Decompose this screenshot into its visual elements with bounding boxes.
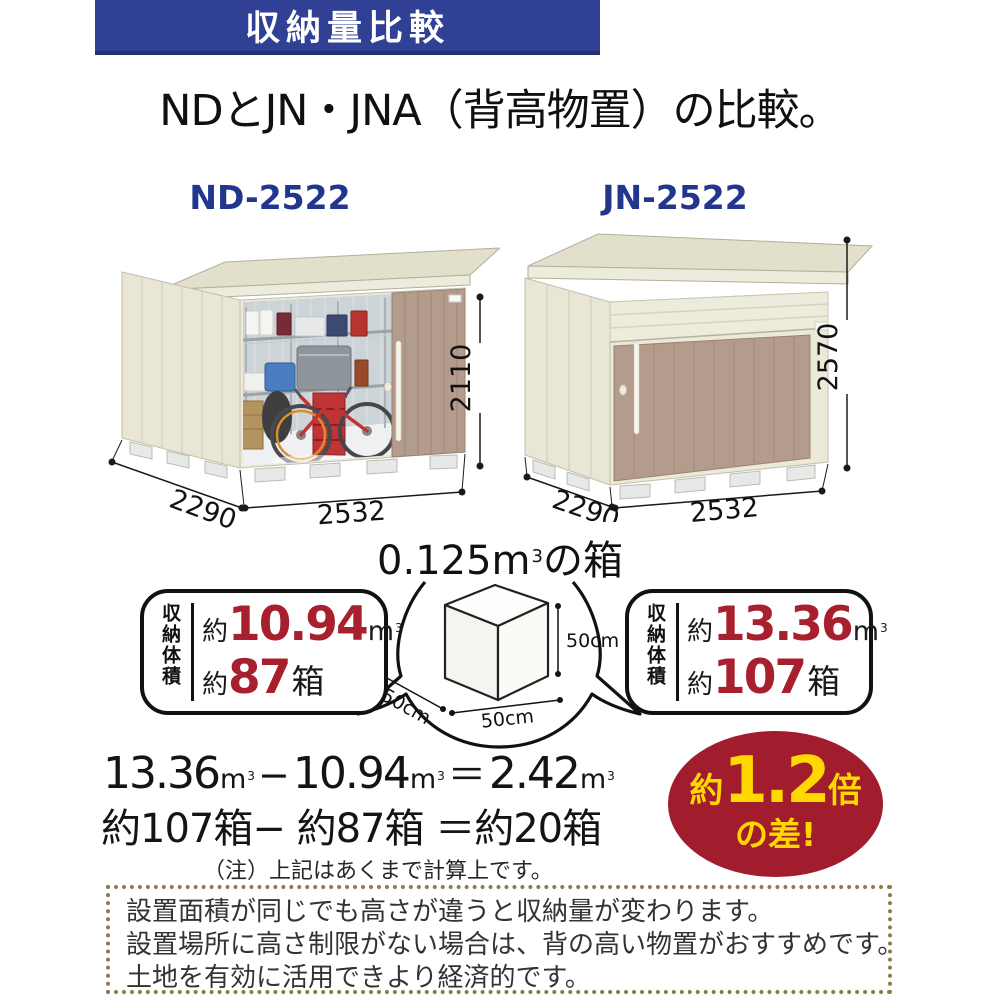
jn-volume-row: 約 13.36 m3 xyxy=(687,601,888,648)
difference-badge: 約 1.2 倍 の差! xyxy=(668,731,883,877)
jn-roof xyxy=(528,234,872,284)
nd-interior xyxy=(241,294,394,467)
footer-line-1: 設置面積が同じでも高さが違うと収納量が変わります。 xyxy=(126,896,872,929)
shed-illustration-nd: 2290 2532 2110 xyxy=(105,225,500,530)
footer-line-2: 設置場所に高さ制限がない場合は、背の高い物置がおすすめです。 xyxy=(126,929,872,962)
page-heading: NDとJN・JNA（背高物置）の比較。 xyxy=(0,76,1000,138)
stat-box-jn: 収納体積 約 13.36 m3 約 107 箱 xyxy=(625,589,873,715)
footer-line-3: 土地を有効に活用できより経済的です。 xyxy=(126,962,872,995)
title-banner: 収納量比較 xyxy=(95,0,600,55)
jn-width-label: 2532 xyxy=(689,492,760,522)
badge-caption: の差! xyxy=(735,808,816,856)
cube-height-label: 50cm xyxy=(566,630,619,652)
badge-value-line: 約 1.2 倍 xyxy=(689,753,861,812)
jn-door-lock xyxy=(620,385,627,395)
nd-door-lock xyxy=(385,382,392,392)
footer-note-box: 設置面積が同じでも高さが違うと収納量が変わります。 設置場所に高さ制限がない場合… xyxy=(106,885,892,994)
stat-label-jn: 収納体積 xyxy=(642,603,679,701)
comparison-infographic: 収納量比較 NDとJN・JNA（背高物置）の比較。 ND-2522 JN-252… xyxy=(0,0,1000,1000)
nd-volume-row: 約 10.94 m3 xyxy=(202,601,403,648)
nd-side-wall xyxy=(122,272,240,468)
jn-boxes-row: 約 107 箱 xyxy=(687,654,888,703)
nd-door-handle xyxy=(396,341,401,441)
calc-boxes-line: 約107箱− 約87箱 ＝約20箱 xyxy=(101,796,601,854)
jn-door-handle xyxy=(634,342,639,434)
nd-boxes-row: 約 87 箱 xyxy=(202,654,403,703)
banner-title: 収納量比較 xyxy=(245,0,450,51)
nd-height-label: 2110 xyxy=(446,344,477,413)
nd-logo-tag xyxy=(449,295,461,302)
jn-side-wall xyxy=(525,278,610,485)
jn-height-label: 2570 xyxy=(813,323,844,392)
calc-note: （注）上記はあくまで計算上です。 xyxy=(203,853,553,885)
model-label-nd: ND-2522 xyxy=(180,178,360,217)
calc-volume-line: 13.36m3−10.94m3＝2.42m3 xyxy=(103,744,615,799)
nd-width-label: 2532 xyxy=(316,496,387,530)
stat-label-nd: 収納体積 xyxy=(157,603,194,701)
cube xyxy=(445,585,548,700)
shed-illustration-jn: 2290 2532 2570 xyxy=(515,222,890,522)
jn-door xyxy=(614,335,810,481)
stat-box-nd: 収納体積 約 10.94 m3 約 87 箱 xyxy=(140,589,388,715)
nd-depth-label: 2290 xyxy=(165,484,240,530)
model-label-jn: JN-2522 xyxy=(585,178,765,217)
